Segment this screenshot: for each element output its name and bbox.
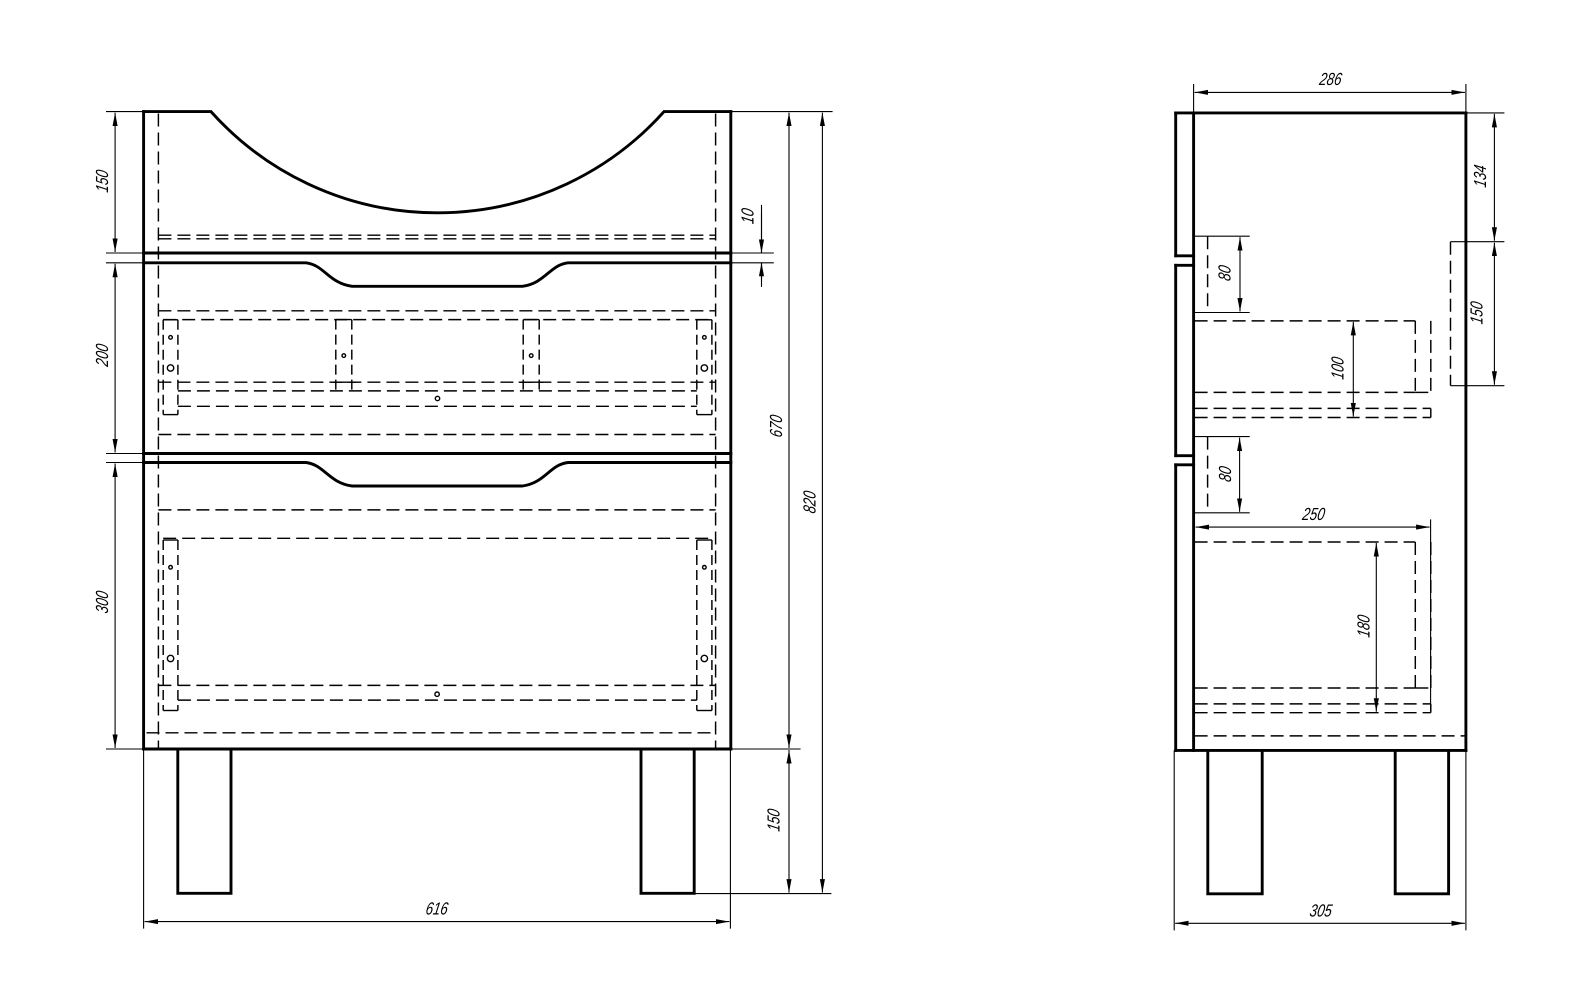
svg-text:300: 300 bbox=[92, 589, 112, 615]
svg-text:150: 150 bbox=[92, 168, 112, 194]
svg-text:286: 286 bbox=[1317, 69, 1343, 89]
svg-text:100: 100 bbox=[1328, 355, 1348, 381]
svg-text:180: 180 bbox=[1353, 613, 1373, 639]
svg-text:616: 616 bbox=[424, 899, 450, 919]
svg-text:820: 820 bbox=[800, 489, 820, 515]
svg-text:250: 250 bbox=[1300, 504, 1326, 524]
svg-text:150: 150 bbox=[1467, 300, 1487, 326]
svg-text:670: 670 bbox=[766, 413, 786, 439]
svg-text:200: 200 bbox=[92, 342, 112, 368]
svg-text:305: 305 bbox=[1308, 900, 1334, 920]
svg-text:134: 134 bbox=[1470, 163, 1490, 189]
svg-text:150: 150 bbox=[764, 807, 784, 833]
